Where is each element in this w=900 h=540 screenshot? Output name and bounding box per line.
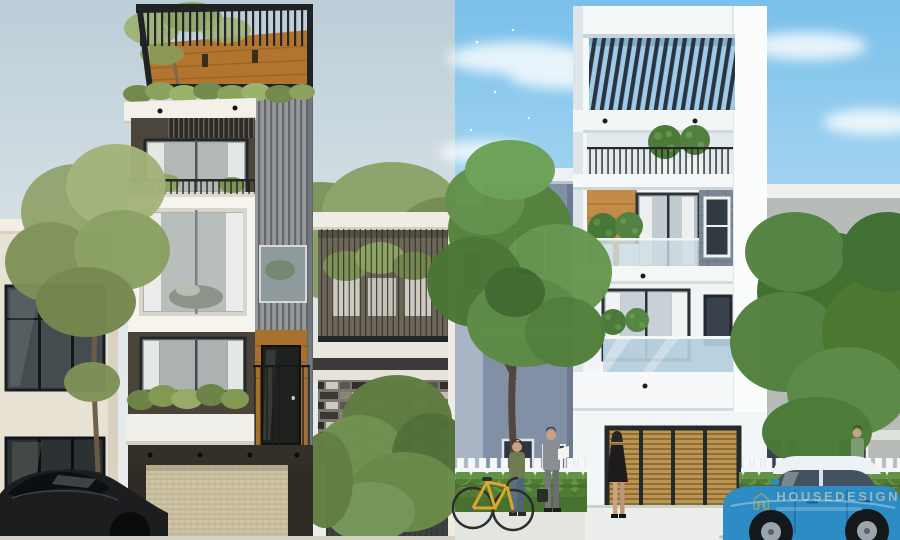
- pergola-louvers: [587, 38, 735, 110]
- second-floor-balcony-band: [126, 414, 258, 444]
- second-floor-right: [583, 284, 733, 372]
- entry-door-section: [253, 330, 310, 448]
- roof-balcony-railing: [587, 148, 733, 176]
- second-floor-window: [141, 338, 245, 392]
- roof-pergola-right: [583, 38, 735, 112]
- briefcase: [537, 489, 548, 502]
- render-comparison-image: HOUSEDESIGN: [0, 0, 900, 540]
- scene-canvas: [0, 0, 900, 540]
- second-floor: [126, 332, 258, 445]
- pergola-slats: [140, 10, 310, 46]
- right-render: [427, 0, 900, 540]
- door-railing: [253, 366, 310, 446]
- car-mirror: [771, 479, 779, 485]
- slatted-transom: [168, 118, 255, 138]
- glass-balcony: [597, 336, 733, 372]
- left-render: [0, 0, 502, 540]
- rooftop-pergola: [124, 2, 313, 90]
- left-sidewalk-strip: [0, 536, 455, 540]
